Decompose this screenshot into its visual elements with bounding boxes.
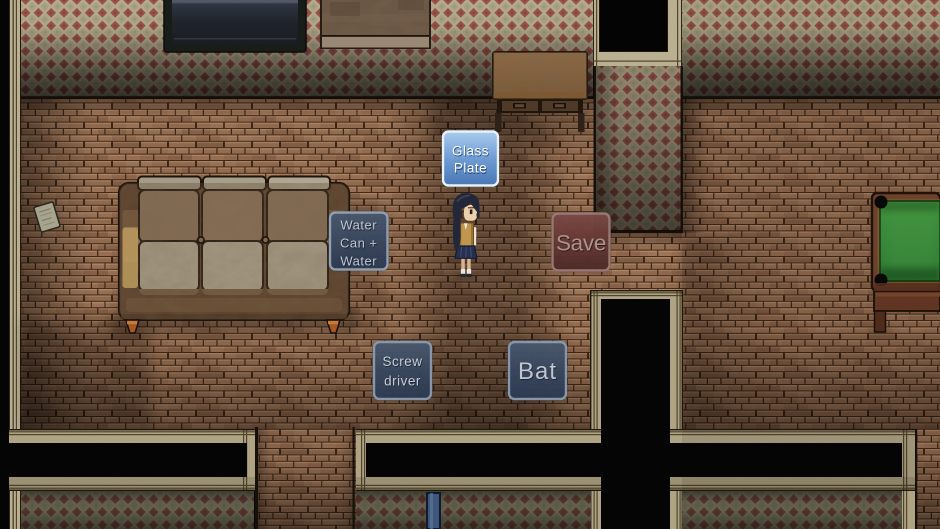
svg-text:Screw: Screw [382, 354, 422, 369]
svg-text:Plate: Plate [454, 161, 487, 176]
svg-text:Water: Water [340, 254, 377, 269]
svg-text:Save: Save [556, 231, 606, 256]
svg-text:Can +: Can + [340, 236, 378, 251]
svg-text:Water: Water [340, 218, 377, 233]
svg-text:Bat: Bat [518, 358, 557, 385]
svg-text:Glass: Glass [452, 144, 489, 159]
svg-text:driver: driver [384, 374, 421, 389]
